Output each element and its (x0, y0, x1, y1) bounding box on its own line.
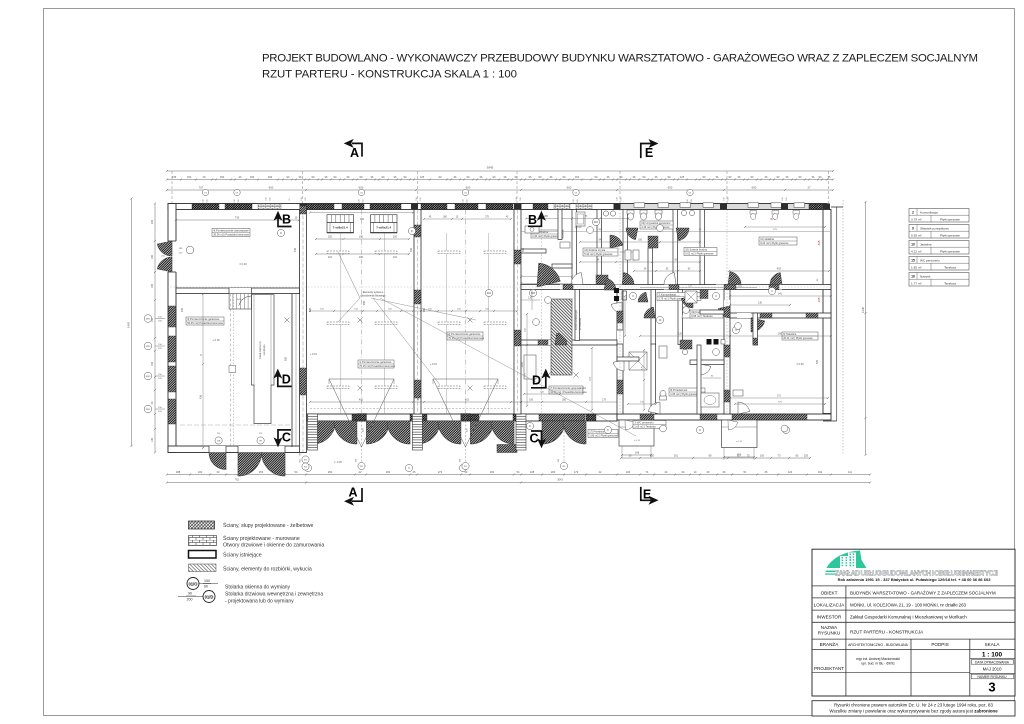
svg-text:4.21 m²: 4.21 m² (911, 249, 922, 253)
svg-text:290: 290 (778, 333, 783, 336)
svg-text:MOŃKI, Ul. KOLEJOWA 21, 19 - 1: MOŃKI, Ul. KOLEJOWA 21, 19 - 100 MOŃKI, … (850, 603, 967, 608)
svg-text:Ściany, słupy projektowane - ż: Ściany, słupy projektowane - żelbetowe (223, 521, 314, 529)
svg-text:Natrysk: Natrysk (920, 275, 931, 279)
svg-text:Rysunki chronione prawem aut: Rysunki chronione prawem autorskim Dz. U… (834, 702, 993, 707)
svg-text:120: 120 (678, 333, 683, 336)
svg-text:150: 150 (151, 361, 154, 366)
svg-text:01/D: 01/D (205, 595, 214, 600)
svg-text:Ściany projektowane - murowane: Ściany projektowane - murowane (223, 534, 300, 542)
svg-text:6.95 m2 | Terakota: 6.95 m2 | Terakota (691, 314, 713, 318)
svg-text:150: 150 (617, 197, 619, 200)
svg-text:165: 165 (691, 199, 693, 202)
svg-text:01D: 01D (487, 293, 492, 295)
svg-text:260: 260 (551, 470, 556, 474)
svg-text:Płytki gresowe: Płytki gresowe (940, 233, 960, 237)
svg-text:600: 600 (269, 185, 274, 189)
svg-text:195: 195 (151, 283, 154, 288)
svg-text:BRANŻA: BRANŻA (820, 641, 840, 647)
svg-text:150: 150 (187, 175, 192, 179)
svg-text:450: 450 (294, 247, 297, 252)
svg-text:7| Pomieszczenie gospodarcze: 7| Pomieszczenie gospodarcze (550, 386, 586, 390)
svg-text:150: 150 (416, 197, 418, 200)
svg-text:150: 150 (687, 199, 689, 202)
svg-text:SWO: SWO (146, 376, 151, 378)
svg-text:0.93 m²: 0.93 m² (911, 233, 922, 237)
svg-text:150: 150 (359, 199, 361, 202)
svg-text:737: 737 (688, 284, 693, 287)
svg-text:435: 435 (817, 240, 821, 245)
svg-text:165: 165 (362, 199, 364, 202)
svg-text:905: 905 (363, 300, 366, 305)
svg-text:76.15 m2| Posadzka betonowa: 76.15 m2| Posadzka betonowa (359, 364, 395, 368)
svg-text:762: 762 (235, 479, 240, 482)
svg-text:NUMER RYSUNKU: NUMER RYSUNKU (977, 675, 1007, 679)
svg-text:27: 27 (807, 185, 811, 189)
svg-text:150: 150 (204, 579, 210, 583)
svg-text:253: 253 (259, 470, 264, 474)
svg-text:165: 165 (238, 199, 240, 202)
svg-text:10| Szatnia brudna: 10| Szatnia brudna (685, 248, 707, 252)
svg-text:RZUT PARTERU - KONSTRUKCJA: RZUT PARTERU - KONSTRUKCJA (850, 630, 924, 635)
svg-text:Płytki gresowe: Płytki gresowe (940, 217, 960, 221)
svg-text:150: 150 (573, 199, 575, 202)
svg-text:135: 135 (172, 175, 177, 179)
svg-text:BUDYNEK WARSZTATOWO - GARAŻOWY: BUDYNEK WARSZTATOWO - GARAŻOWY Z ZAPLECZ… (850, 590, 996, 595)
svg-text:MAJ 2010: MAJ 2010 (983, 667, 1003, 672)
svg-text:575: 575 (816, 359, 819, 364)
svg-text:2.30 m2 | Płytki gresowe: 2.30 m2 | Płytki gresowe (532, 234, 561, 238)
svg-text:571: 571 (777, 395, 782, 398)
svg-text:Wszelkie zmiany i powielanie o: Wszelkie zmiany i powielanie oraz wykorz… (829, 708, 998, 713)
svg-text:13| Umywalnia personelu: 13| Umywalnia personelu (641, 221, 671, 225)
svg-text:C: C (282, 431, 291, 445)
svg-text:255: 255 (804, 454, 809, 457)
svg-text:4.15 m2 | Płytki gresowe: 4.15 m2 | Płytki gresowe (641, 225, 670, 229)
svg-text:Rok założenia 1991 15 - 337: Rok założenia 1991 15 - 337 Białystok ul… (838, 577, 992, 582)
svg-text:341: 341 (778, 293, 783, 296)
svg-text:± 0.15: ± 0.15 (634, 440, 641, 442)
svg-text:RZUT PARTERU - KONSTRUKCJA S: RZUT PARTERU - KONSTRUKCJA SKALA 1 : 100 (262, 69, 517, 81)
svg-text:5.10 m2 | Płytki gresowe: 5.10 m2 | Płytki gresowe (584, 252, 613, 256)
svg-text:Komunikacja: Komunikacja (920, 211, 938, 215)
svg-text:260: 260 (386, 470, 391, 474)
svg-text:10: 10 (911, 243, 915, 247)
svg-text:120: 120 (788, 470, 793, 474)
svg-text:100: 100 (760, 454, 765, 457)
svg-text:402: 402 (465, 398, 470, 401)
svg-text:± 0.00: ± 0.00 (796, 362, 804, 366)
svg-text:PODPIS: PODPIS (931, 642, 948, 647)
svg-text:3: 3 (988, 680, 995, 695)
svg-text:108: 108 (530, 470, 535, 474)
svg-text:wentylacja: wentylacja (263, 344, 266, 355)
svg-text:6| Swietlica: 6| Swietlica (783, 332, 797, 336)
svg-text:150: 150 (301, 197, 303, 200)
svg-text:1 : 100: 1 : 100 (982, 652, 1003, 659)
svg-text:NAZWA: NAZWA (821, 625, 838, 630)
svg-text:± -0.05: ± -0.05 (334, 461, 342, 464)
svg-text:Płytki gresowe: Płytki gresowe (940, 249, 960, 253)
svg-text:01/O: 01/O (188, 582, 198, 587)
svg-text:LOKALIZACJA: LOKALIZACJA (814, 603, 846, 608)
svg-text:15: 15 (911, 259, 915, 263)
svg-text:436: 436 (200, 394, 203, 399)
svg-text:301: 301 (674, 454, 679, 457)
svg-text:150: 150 (250, 175, 255, 179)
svg-text:165: 165 (151, 254, 154, 259)
svg-text:6x16.2: 6x16.2 (237, 299, 244, 301)
svg-text:14| Szatnia czysta: 14| Szatnia czysta (584, 248, 606, 252)
svg-text:150: 150 (516, 197, 518, 200)
svg-text:165: 165 (206, 199, 208, 202)
svg-text:111: 111 (848, 470, 852, 474)
svg-text:231: 231 (393, 256, 398, 259)
svg-text:36.36 m2| Posadzka betonowa: 36.36 m2| Posadzka betonowa (213, 233, 249, 237)
svg-text:± 0.00: ± 0.00 (239, 262, 247, 266)
svg-text:165: 165 (420, 197, 422, 200)
svg-text:165: 165 (520, 197, 522, 200)
svg-text:2| Pomieszczenie garazowe: 2| Pomieszczenie garazowe (448, 332, 481, 336)
svg-text:165: 165 (305, 197, 307, 200)
svg-text:1340: 1340 (861, 306, 865, 313)
svg-text:9: 9 (912, 227, 914, 231)
svg-text:165: 165 (466, 199, 468, 202)
svg-text:B: B (282, 213, 291, 227)
svg-text:E: E (645, 146, 653, 160)
svg-text:3| Pomieszczenie garazowe: 3| Pomieszczenie garazowe (187, 317, 220, 321)
svg-text:SWO: SWO (146, 319, 151, 321)
svg-text:273: 273 (438, 470, 443, 474)
svg-text:do rozbiorki: do rozbiorki (579, 318, 582, 330)
svg-text:150: 150 (724, 197, 726, 200)
svg-text:525: 525 (522, 247, 525, 252)
svg-text:152: 152 (575, 175, 580, 179)
svg-text:905: 905 (285, 356, 288, 361)
svg-text:10.46 m2 | Posadzka betonowa: 10.46 m2 | Posadzka betonowa (550, 390, 587, 394)
svg-text:3845: 3845 (487, 166, 494, 170)
svg-text:- projektowana lub do wymiany: - projektowana lub do wymiany (225, 599, 294, 605)
svg-text:Elementy systemu: Elementy systemu (363, 291, 384, 294)
svg-text:+ 0.15: + 0.15 (310, 353, 317, 356)
svg-text:730: 730 (235, 215, 240, 219)
svg-text:196: 196 (635, 451, 640, 455)
svg-text:SWO: SWO (146, 409, 151, 411)
svg-text:Terakota: Terakota (944, 265, 956, 269)
svg-text:905: 905 (309, 307, 312, 312)
svg-text:600: 600 (466, 185, 471, 189)
svg-text:C: C (529, 432, 538, 446)
svg-text:165: 165 (269, 197, 271, 200)
svg-text:SKALA: SKALA (985, 642, 1001, 647)
svg-text:Ściany istniejące: Ściany istniejące (223, 551, 262, 559)
svg-text:1.65 m2 | Terakota: 1.65 m2 | Terakota (634, 425, 656, 429)
svg-text:600: 600 (567, 185, 572, 189)
svg-text:757: 757 (199, 185, 204, 189)
svg-text:26.11 m2 | Płytki gresowe: 26.11 m2 | Płytki gresowe (783, 336, 813, 340)
svg-text:453: 453 (777, 267, 782, 270)
svg-text:204: 204 (268, 175, 273, 179)
svg-text:1| Pomieszczenie garazowe: 1| Pomieszczenie garazowe (359, 360, 392, 364)
svg-text:Ściany, elementy do rozbiórk: Ściany, elementy do rozbiórki, wykucia (223, 565, 312, 573)
svg-text:SWO: SWO (146, 346, 151, 348)
svg-text:201: 201 (738, 284, 743, 287)
svg-text:150: 150 (782, 197, 784, 200)
svg-text:90: 90 (188, 592, 192, 596)
svg-text:135: 135 (817, 297, 821, 302)
svg-text:400: 400 (360, 218, 365, 221)
svg-text:ARCHITEKTONICZNO - BUDOWLANA: ARCHITEKTONICZNO - BUDOWLANA (848, 643, 908, 647)
svg-text:16: 16 (911, 275, 915, 279)
svg-text:1.77 m²: 1.77 m² (911, 281, 922, 285)
svg-text:Jadalnia: Jadalnia (920, 243, 932, 247)
svg-text:Kanał naprawczy: Kanał naprawczy (259, 340, 262, 358)
svg-text:+ 0.15: + 0.15 (212, 338, 220, 342)
svg-text:7-st/6x21.4: 7-st/6x21.4 (376, 226, 391, 230)
svg-text:odwodnienia liniowego: odwodnienia liniowego (360, 295, 386, 298)
svg-text:DATA OPRACOWANIA: DATA OPRACOWANIA (975, 660, 1010, 664)
svg-text:150: 150 (328, 235, 333, 238)
svg-text:upr. bud. nr BŁ - 69/91: upr. bud. nr BŁ - 69/91 (861, 662, 895, 666)
svg-text:E: E (643, 488, 651, 502)
svg-text:100: 100 (638, 239, 643, 242)
svg-text:150: 150 (220, 175, 225, 179)
svg-text:402: 402 (359, 398, 364, 401)
svg-text:Komin wentylacyjny: Komin wentylacyjny (575, 309, 578, 330)
svg-text:1.86 m2 | Płytki gresowe: 1.86 m2 | Płytki gresowe (589, 434, 618, 438)
svg-text:11| Jadalnia: 11| Jadalnia (760, 237, 774, 241)
svg-text:342: 342 (818, 470, 823, 474)
svg-text:600: 600 (668, 185, 673, 189)
svg-text:179: 179 (574, 470, 579, 474)
svg-text:260: 260 (328, 470, 333, 474)
svg-text:D: D (532, 374, 541, 388)
svg-text:100: 100 (626, 470, 631, 474)
svg-text:1.95 m2 | Płytki gresowe: 1.95 m2 | Płytki gresowe (670, 392, 699, 396)
svg-text:8| Przedsionek: 8| Przedsionek (670, 388, 688, 392)
svg-text:A: A (348, 486, 357, 500)
svg-text:A: A (350, 146, 359, 160)
svg-text:1005: 1005 (521, 362, 524, 368)
svg-text:B: B (528, 213, 537, 227)
svg-text:mgr inż. Andrzej Maciorowski: mgr inż. Andrzej Maciorowski (856, 657, 900, 661)
svg-text:188: 188 (176, 470, 181, 474)
svg-text:230: 230 (151, 219, 154, 224)
svg-text:905: 905 (423, 307, 426, 312)
svg-text:3043: 3043 (557, 479, 563, 482)
svg-text:125: 125 (680, 175, 685, 179)
svg-text:01D: 01D (531, 293, 536, 295)
svg-text:5.62 m2 | Płytki gresowe: 5.62 m2 | Płytki gresowe (685, 252, 714, 256)
svg-text:150: 150 (463, 199, 465, 202)
svg-text:135: 135 (151, 437, 154, 442)
svg-text:Otwory drzwiowe i okienne do z: Otwory drzwiowe i okienne do zamurowania (223, 543, 324, 549)
svg-text:9.22 m2 | Płytki gresowe: 9.22 m2 | Płytki gresowe (760, 241, 789, 245)
svg-text:Składzik porządkowy: Składzik porządkowy (920, 227, 949, 231)
svg-text:PROJEKT BUDOWLANO - WYKONAWCZY: PROJEKT BUDOWLANO - WYKONAWCZY PRZEBUDOW… (262, 52, 978, 65)
svg-text:PROJEKTANT: PROJEKTANT (814, 666, 844, 671)
svg-text:150: 150 (203, 199, 205, 202)
svg-text:OBIEKT: OBIEKT (821, 590, 838, 595)
svg-text:165: 165 (577, 199, 579, 202)
svg-text:1.65 m²: 1.65 m² (911, 265, 922, 269)
svg-text:450: 450 (181, 307, 184, 312)
svg-text:130: 130 (758, 302, 763, 305)
svg-text:Zakład Gospodarki Komunalnej i: Zakład Gospodarki Komunalnej i Mieszkani… (850, 615, 967, 620)
svg-text:260: 260 (490, 470, 495, 474)
svg-text:1465: 1465 (127, 321, 131, 328)
svg-text:76.15 m2| Posadzka betonowa: 76.15 m2| Posadzka betonowa (448, 336, 484, 340)
svg-text:150: 150 (266, 197, 268, 200)
svg-text:2: 2 (912, 211, 914, 215)
svg-text:200: 200 (187, 598, 193, 602)
svg-text:7| WC personelu: 7| WC personelu (634, 421, 654, 425)
svg-text:01D: 01D (594, 222, 599, 224)
svg-text:100: 100 (198, 470, 203, 474)
svg-text:Stolarka okienna do wymiany: Stolarka okienna do wymiany (225, 585, 291, 591)
svg-text:231: 231 (328, 256, 333, 259)
svg-text:165: 165 (620, 197, 622, 200)
svg-text:165: 165 (727, 197, 729, 200)
svg-text:60: 60 (204, 585, 208, 589)
svg-text:600: 600 (752, 185, 757, 189)
svg-text:INWESTOR: INWESTOR (817, 615, 842, 620)
svg-text:± 0.15: ± 0.15 (736, 441, 743, 443)
svg-text:4| Pomieszczenie warsztatowe: 4| Pomieszczenie warsztatowe (213, 229, 249, 233)
svg-text:+ 0.15: + 0.15 (430, 363, 437, 366)
svg-text:± 0.00: ± 0.00 (575, 226, 582, 229)
svg-text:3.79 m²: 3.79 m² (911, 217, 922, 221)
svg-text:Terakota: Terakota (944, 281, 956, 285)
svg-text:460: 460 (410, 247, 413, 252)
svg-text:RYSUNKU: RYSUNKU (818, 630, 840, 635)
svg-text:7-st/6x21.4: 7-st/6x21.4 (333, 226, 348, 230)
svg-text:56.35 m2| Posadzka betonowa: 56.35 m2| Posadzka betonowa (187, 321, 223, 325)
svg-text:150: 150 (393, 235, 398, 238)
svg-text:150: 150 (234, 199, 236, 202)
svg-text:Stolarka drzwiowa wewnętrzna i: Stolarka drzwiowa wewnętrzna i zewnętrzn… (225, 592, 323, 598)
svg-text:D: D (282, 372, 291, 386)
svg-text:125: 125 (420, 175, 425, 179)
svg-text:WC personelu: WC personelu (920, 259, 940, 263)
svg-text:165: 165 (786, 197, 788, 200)
svg-text:100: 100 (650, 454, 655, 457)
svg-text:600: 600 (359, 185, 364, 189)
